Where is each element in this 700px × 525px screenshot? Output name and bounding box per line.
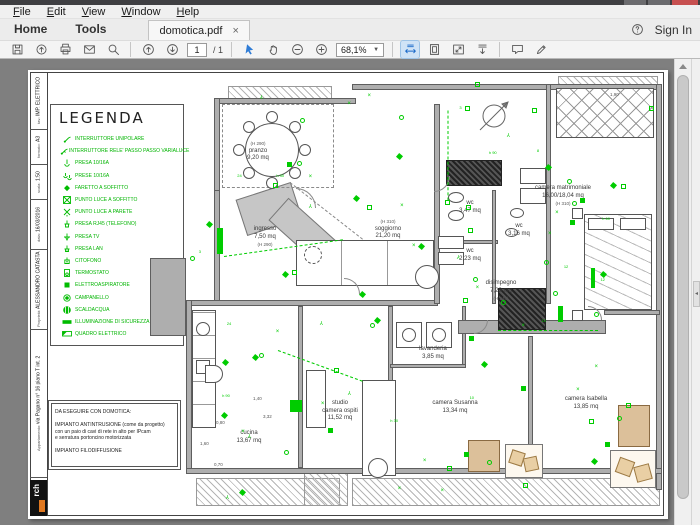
wall [298, 306, 303, 468]
fit-width-button[interactable] [401, 41, 419, 58]
dimension-label: 3,32 [263, 414, 283, 420]
electrical-symbol [481, 361, 488, 368]
electrical-symbol [532, 108, 537, 113]
electrical-symbol [284, 450, 289, 455]
tab-home[interactable]: Home [0, 19, 61, 40]
room-label-soggiorno: (H 310)soggiorno21,20 mq [375, 218, 401, 241]
electrical-annotation: h 90 [222, 394, 238, 399]
pdf-page: tav.:IMP. ELETTRICOformato:A3scala:1:50d… [28, 70, 668, 519]
electrical-symbol [521, 386, 526, 391]
electrical-symbol [359, 291, 366, 298]
room-label-camera-isabella: camera Isabella13,85 mq [565, 396, 607, 411]
electrical-symbol: × [321, 402, 326, 407]
zoom-level-value: 68,1% [341, 45, 367, 55]
electrical-symbol [370, 323, 375, 328]
electrical-symbol [206, 221, 213, 228]
electrical-annotation: 8 [537, 149, 553, 154]
electrical-symbol [300, 118, 305, 123]
chair [243, 121, 255, 133]
tab-tools[interactable]: Tools [61, 19, 120, 40]
bed-tan [610, 450, 656, 488]
electrical-symbol [591, 458, 598, 465]
electrical-symbol [273, 183, 278, 188]
electrical-symbol [589, 419, 594, 424]
scroll-up-icon[interactable] [679, 64, 687, 69]
pane-toggle-handle[interactable]: ◂ [693, 281, 700, 307]
electrical-symbol [523, 483, 528, 488]
electrical-annotation: h 30 [276, 174, 292, 179]
room-label-camera-susanna: camera Susanna13,34 mq [432, 400, 477, 415]
electrical-symbol [287, 162, 292, 167]
page-number-input[interactable]: 1 [187, 43, 207, 57]
safety-light-bar [591, 268, 595, 288]
electrical-symbol [292, 270, 297, 275]
electrical-symbol: Y [455, 253, 460, 258]
dimension-label: 1,40 [253, 396, 273, 402]
pillow [620, 218, 646, 230]
wall [186, 300, 438, 306]
safety-light-bar [217, 228, 223, 254]
electrical-symbol [649, 106, 654, 111]
sink [196, 322, 210, 336]
scrollbar-thumb[interactable] [677, 75, 689, 499]
green-dashed-line [498, 330, 598, 331]
right-pane-strip: ◂ [691, 59, 700, 525]
electrical-symbol [447, 466, 452, 471]
menu-item-help[interactable]: Help [170, 6, 207, 18]
electrical-symbol [475, 82, 480, 87]
close-tab-icon[interactable]: × [232, 26, 238, 36]
wall [390, 364, 466, 368]
electrical-symbol [259, 353, 264, 358]
chair [233, 144, 245, 156]
wall [604, 310, 660, 315]
pillow [368, 458, 388, 478]
nightstand [572, 208, 583, 219]
zoom-in-button[interactable] [312, 41, 330, 58]
electrical-symbol [468, 228, 473, 233]
safety-light-bar [558, 306, 563, 322]
electrical-annotation: 3 [459, 106, 475, 111]
electrical-symbol [605, 442, 610, 447]
electrical-annotation: 12 [564, 265, 580, 270]
electrical-symbol: × [476, 286, 481, 291]
appliance-mark [290, 400, 302, 412]
room-label-pranzo: (H 290)pranzo9,20 mq [247, 140, 269, 163]
wardrobe-tan [618, 405, 650, 447]
select-tool-button[interactable] [240, 41, 258, 58]
electrical-symbol: Y [318, 319, 323, 324]
dimension-label: 0,70 [214, 462, 234, 468]
save-button[interactable] [8, 41, 26, 58]
wall [656, 84, 662, 490]
wall [186, 468, 662, 474]
electrical-symbol: × [276, 330, 281, 335]
room-label-camera-matrimoniale: camera matrimoniale16,00/18,04 mq(H 310) [535, 185, 591, 208]
previous-page-button[interactable] [139, 41, 157, 58]
electrical-symbol [328, 428, 333, 433]
wall [462, 306, 466, 368]
menubar: FileEditViewWindowHelp [0, 5, 700, 19]
vertical-scrollbar[interactable] [674, 59, 691, 525]
electrical-symbol: × [347, 102, 352, 107]
electrical-symbol: Y [346, 389, 351, 394]
electrical-annotation: 3 [199, 250, 215, 255]
search-button[interactable] [104, 41, 122, 58]
electrical-symbol: Y [307, 202, 312, 207]
shower-tray [446, 160, 502, 186]
electrical-symbol [610, 182, 617, 189]
electrical-annotation: h 90 [489, 151, 505, 156]
electrical-symbol [222, 359, 229, 366]
email-button[interactable] [80, 41, 98, 58]
electrical-symbol [567, 179, 572, 184]
hand-tool-button[interactable] [264, 41, 282, 58]
electrical-symbol: × [398, 487, 403, 492]
room-label-wc-2: wc3,16 mq [508, 223, 530, 238]
electrical-symbol [463, 298, 468, 303]
room-label-disimpegno: disimpegno7,23 mq(H 240) [486, 280, 517, 303]
electrical-symbol [617, 416, 622, 421]
kitchen-table [205, 365, 223, 383]
electrical-symbol [473, 277, 478, 282]
electrical-symbol: Y [246, 432, 251, 437]
green-dashed-line [448, 111, 449, 201]
electrical-symbol [367, 205, 372, 210]
electrical-annotation: 12 [600, 278, 616, 283]
bed-tan [505, 444, 543, 478]
electrical-annotation: 24 [227, 322, 243, 327]
sign-in-button[interactable]: Sign In [655, 23, 692, 37]
electrical-symbol: × [367, 94, 372, 99]
pillow-tan [523, 456, 540, 473]
electrical-symbol [553, 291, 558, 296]
page-total-label: / 1 [213, 45, 223, 55]
electrical-symbol [190, 256, 195, 261]
electrical-symbol: × [548, 232, 553, 237]
electrical-symbol [353, 195, 360, 202]
tab-bar: Home Tools domotica.pdf × [0, 19, 700, 40]
washer [396, 322, 422, 348]
electrical-annotation: 24 [237, 174, 253, 179]
electrical-symbol [252, 354, 259, 361]
washer-door [402, 328, 416, 342]
electrical-symbol: × [521, 324, 526, 329]
washer-door [432, 328, 446, 342]
dimension-label: 1,60 [200, 441, 220, 447]
electrical-symbol [570, 220, 575, 225]
toilet [510, 208, 524, 218]
wall [214, 98, 356, 104]
scroll-mode-button[interactable] [473, 41, 491, 58]
electrical-symbol [464, 452, 469, 457]
pillow-tan [633, 463, 653, 483]
menu-item-file[interactable]: File [6, 6, 38, 18]
electrical-symbol [626, 403, 631, 408]
electrical-annotation: h 60 [602, 217, 618, 222]
zoom-level-select[interactable]: 68,1% ▼ [336, 43, 384, 57]
room-label-studio-camera-ospiti: studiocamera ospiti11,52 mq [322, 400, 358, 423]
tab-document-label: domotica.pdf [159, 25, 222, 37]
wardrobe [556, 88, 654, 138]
door-arc [296, 188, 316, 208]
electrical-symbol: × [309, 175, 314, 180]
bath-cabinet [520, 168, 546, 184]
washer [426, 322, 452, 348]
electrical-symbol: × [241, 430, 246, 435]
electrical-symbol [466, 205, 471, 210]
upload-cloud-button[interactable] [32, 41, 50, 58]
room-label-lavanderia: lavanderia3,85 mq [419, 346, 447, 361]
electrical-symbol: × [441, 489, 446, 494]
chair [266, 111, 278, 123]
electrical-symbol: × [576, 388, 581, 393]
north-arrow-icon [474, 96, 514, 136]
pouf [415, 265, 439, 289]
chair [289, 121, 301, 133]
electrical-symbol: Y [224, 493, 229, 498]
help-icon[interactable] [629, 21, 647, 38]
plant [304, 246, 322, 264]
electrical-symbol [396, 153, 403, 160]
toolbar: 1 / 1 68,1% ▼ [0, 40, 700, 59]
document-area: tav.:IMP. ELETTRICOformato:A3scala:1:50d… [0, 59, 700, 525]
electrical-symbol: × [423, 459, 428, 464]
comment-button[interactable] [508, 41, 526, 58]
dimension-label: 1,90 [610, 92, 630, 98]
fullscreen-button[interactable] [449, 41, 467, 58]
fit-page-button[interactable] [425, 41, 443, 58]
chair [299, 144, 311, 156]
electrical-symbol [621, 184, 626, 189]
wardrobe-tan [468, 440, 500, 472]
nightstand [572, 310, 583, 321]
wall [214, 98, 220, 193]
next-page-button[interactable] [163, 41, 181, 58]
electrical-symbol: × [412, 244, 417, 249]
electrical-symbol [399, 115, 404, 120]
electrical-symbol [221, 412, 228, 419]
chevron-down-icon: ▼ [373, 47, 379, 53]
tab-document[interactable]: domotica.pdf × [148, 20, 249, 40]
room-label-wc-3: wc2,23 mq [459, 248, 481, 263]
electrical-symbol [501, 300, 506, 305]
electrical-annotation: 10 [542, 319, 558, 324]
electrical-symbol [469, 336, 474, 341]
electrical-symbol [487, 460, 492, 465]
menu-item-edit[interactable]: Edit [40, 6, 73, 18]
electrical-annotation: h 30 [390, 419, 406, 424]
electrical-symbol: × [400, 204, 405, 209]
electrical-annotation: 10 [470, 396, 486, 401]
room-label-ingresso: ingresso7,50 mq(H 290) [254, 226, 277, 249]
balcony-hatch [304, 472, 348, 506]
electrical-symbol: Y [505, 131, 510, 136]
zoom-out-button[interactable] [288, 41, 306, 58]
electrical-symbol [594, 312, 599, 317]
electrical-symbol [282, 271, 289, 278]
highlight-button[interactable] [532, 41, 550, 58]
floor-plan: (H 290)pranzo9,20 mqingresso7,50 mq(H 29… [28, 70, 668, 519]
electrical-symbol: × [595, 365, 600, 370]
neighbor-block [150, 258, 186, 336]
menu-item-window[interactable]: Window [114, 6, 167, 18]
menu-item-view[interactable]: View [75, 6, 113, 18]
electrical-symbol: Y [258, 93, 263, 98]
print-button[interactable] [56, 41, 74, 58]
electrical-symbol [580, 198, 585, 203]
electrical-symbol: × [555, 211, 560, 216]
dimension-label: 0,80 [216, 420, 236, 426]
